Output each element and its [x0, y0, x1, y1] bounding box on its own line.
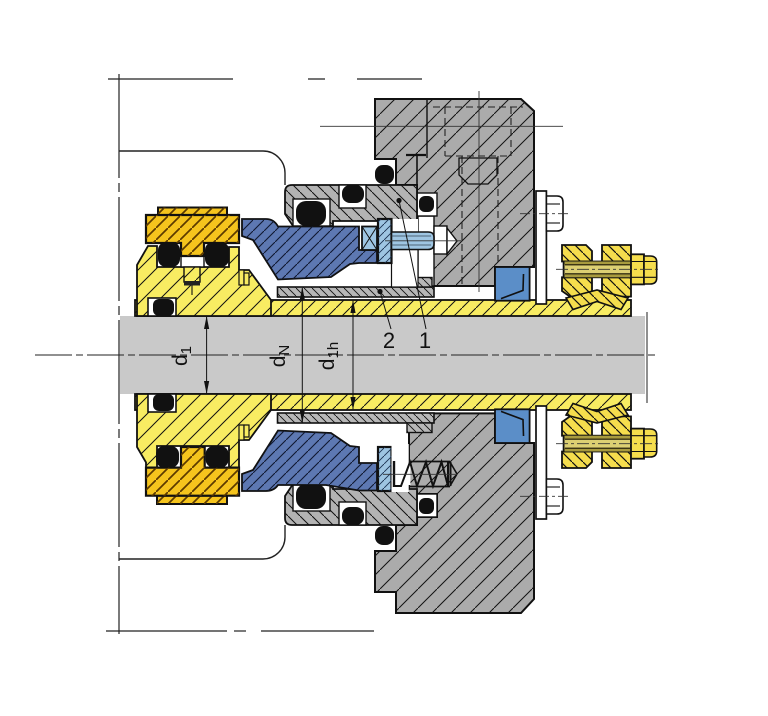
svg-text:2: 2 — [383, 328, 395, 353]
svg-text:1: 1 — [419, 328, 431, 353]
